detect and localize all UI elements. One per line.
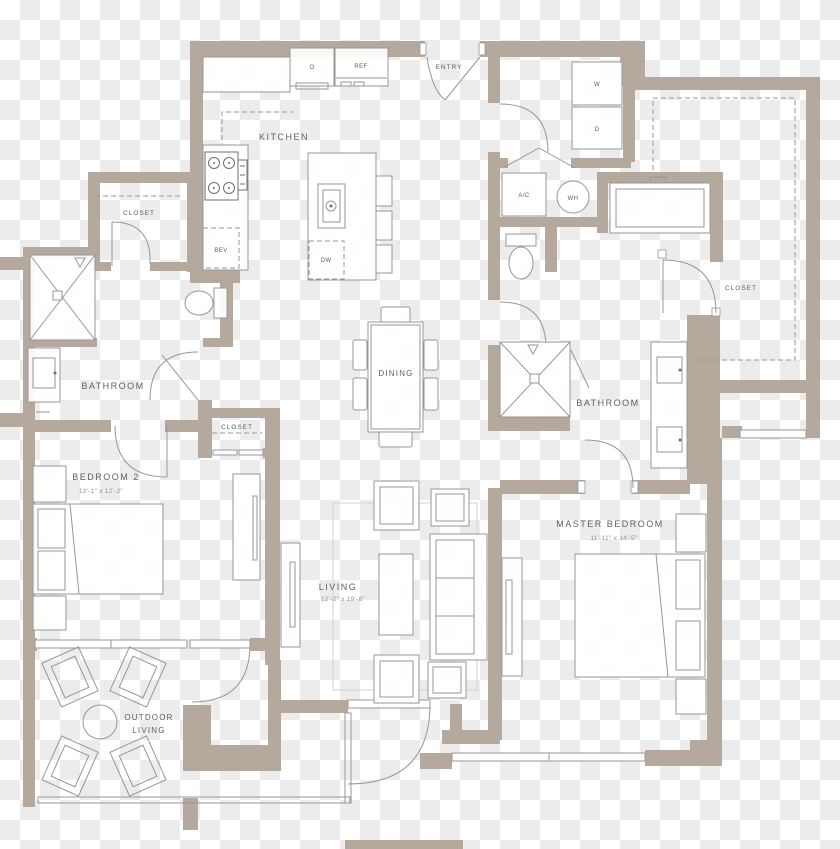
middle-closet-bifold — [239, 450, 263, 455]
outdoor-chair — [42, 736, 98, 796]
kitchen-island: DW — [308, 153, 392, 280]
bed — [33, 504, 163, 594]
media-console — [281, 543, 300, 647]
dining-chair — [353, 378, 367, 410]
coffee-table — [379, 554, 413, 635]
bar-stool — [376, 211, 392, 240]
refrigerator: REF — [335, 48, 388, 86]
shower-door — [571, 350, 589, 388]
master-door-jamb — [631, 481, 638, 493]
master-bedroom-dimensions: 11'-11" x 14'-5" — [591, 535, 638, 542]
bathroom2-label: BATHROOM — [81, 381, 144, 391]
master-closet-door-arc — [663, 260, 716, 313]
oven-label: O — [309, 65, 314, 71]
living-dimensions: 12'-2" x 19'-6" — [321, 596, 365, 603]
dining-chair — [424, 340, 438, 370]
master-nook-window — [740, 430, 806, 438]
water-heater-label: WH — [568, 196, 579, 202]
entry-jamb — [479, 43, 485, 55]
outdoor-table — [83, 705, 117, 739]
nightstand — [676, 514, 706, 552]
nightstand — [33, 596, 66, 630]
bathroom2-vanity — [28, 348, 60, 412]
master-closet-label: CLOSET — [725, 285, 757, 292]
dining-label: DINING — [378, 369, 413, 378]
armchair — [374, 481, 419, 530]
master-toilet — [506, 234, 536, 279]
dining-chair — [424, 378, 438, 410]
bedroom2-door-arc — [115, 426, 167, 477]
ac-closet-door-right — [539, 148, 575, 168]
sofa — [430, 534, 487, 660]
oven: O — [290, 48, 334, 89]
middle-closet-bifold — [213, 450, 237, 455]
hall-closet-door-arc — [112, 222, 150, 264]
bar-stool — [376, 176, 392, 206]
tv-console — [502, 558, 522, 676]
balcony-door2-arc — [192, 644, 250, 702]
ac-label: A/C — [518, 193, 529, 199]
bathroom2-door-arc — [150, 352, 198, 400]
hall-closet-label: CLOSET — [123, 210, 155, 217]
dining-chair — [381, 307, 410, 323]
refrigerator-label: REF — [354, 64, 367, 70]
living-furniture — [281, 481, 522, 703]
kitchen-label: KITCHEN — [259, 132, 309, 142]
washer-label: W — [594, 82, 600, 88]
bedroom2-label: BEDROOM 2 — [72, 472, 140, 482]
dining-chair — [353, 340, 367, 370]
master-bath-door-arc — [500, 302, 546, 348]
kitchen-fixtures: O REF BEV DW — [203, 48, 392, 280]
bed — [575, 554, 705, 677]
master-bathroom-label: BATHROOM — [576, 398, 639, 408]
master-bedroom-door-arc — [585, 440, 633, 488]
entry-label: ENTRY — [436, 64, 463, 71]
bedroom2-furniture — [33, 466, 260, 630]
nightstand — [33, 466, 66, 502]
ac-closet-door-left — [503, 148, 539, 168]
dresser — [233, 474, 260, 580]
entry-jamb — [420, 43, 426, 55]
master-vanity — [651, 342, 687, 468]
outdoor-chair — [110, 647, 166, 707]
floorplan-canvas: O REF BEV DW — [0, 0, 840, 849]
kitchen-counter-top — [203, 57, 290, 92]
outdoor-chair — [110, 736, 166, 796]
master-furniture — [575, 514, 706, 714]
balcony-railing — [345, 713, 351, 803]
bathtub — [610, 177, 710, 233]
balcony-door2-leaf — [190, 640, 250, 648]
laundry-door-arc — [500, 104, 548, 152]
bathroom2-toilet — [185, 288, 227, 318]
floorplan-drawing: O REF BEV DW — [0, 0, 840, 849]
beverage-label: BEV — [214, 248, 227, 254]
bar-stool — [376, 245, 392, 273]
master-bedroom-label: MASTER BEDROOM — [556, 519, 664, 529]
nightstand — [676, 679, 706, 714]
outdoor-chair — [42, 647, 98, 707]
kitchen-upper-cabinets — [222, 112, 293, 148]
closet-door-jamb — [658, 250, 666, 258]
armchair — [431, 489, 469, 526]
dishwasher-label: DW — [321, 258, 332, 264]
outdoor-living-label-line1: OUTDOOR — [124, 713, 173, 722]
armchair — [374, 655, 419, 703]
outdoor-living-label-line2: LIVING — [132, 726, 165, 735]
bathroom2-door-leaf — [162, 355, 198, 400]
bathroom2-shower — [30, 255, 95, 340]
dining-chair — [379, 431, 412, 447]
dryer-label: D — [595, 127, 600, 133]
master-door-jamb — [578, 481, 585, 493]
armchair — [428, 662, 466, 698]
bedroom2-dimensions: 13'-1" x 12'-2" — [79, 488, 123, 495]
living-label: LIVING — [319, 582, 358, 592]
balcony-door-arc — [348, 704, 430, 784]
middle-closet-label: CLOSET — [221, 424, 253, 431]
